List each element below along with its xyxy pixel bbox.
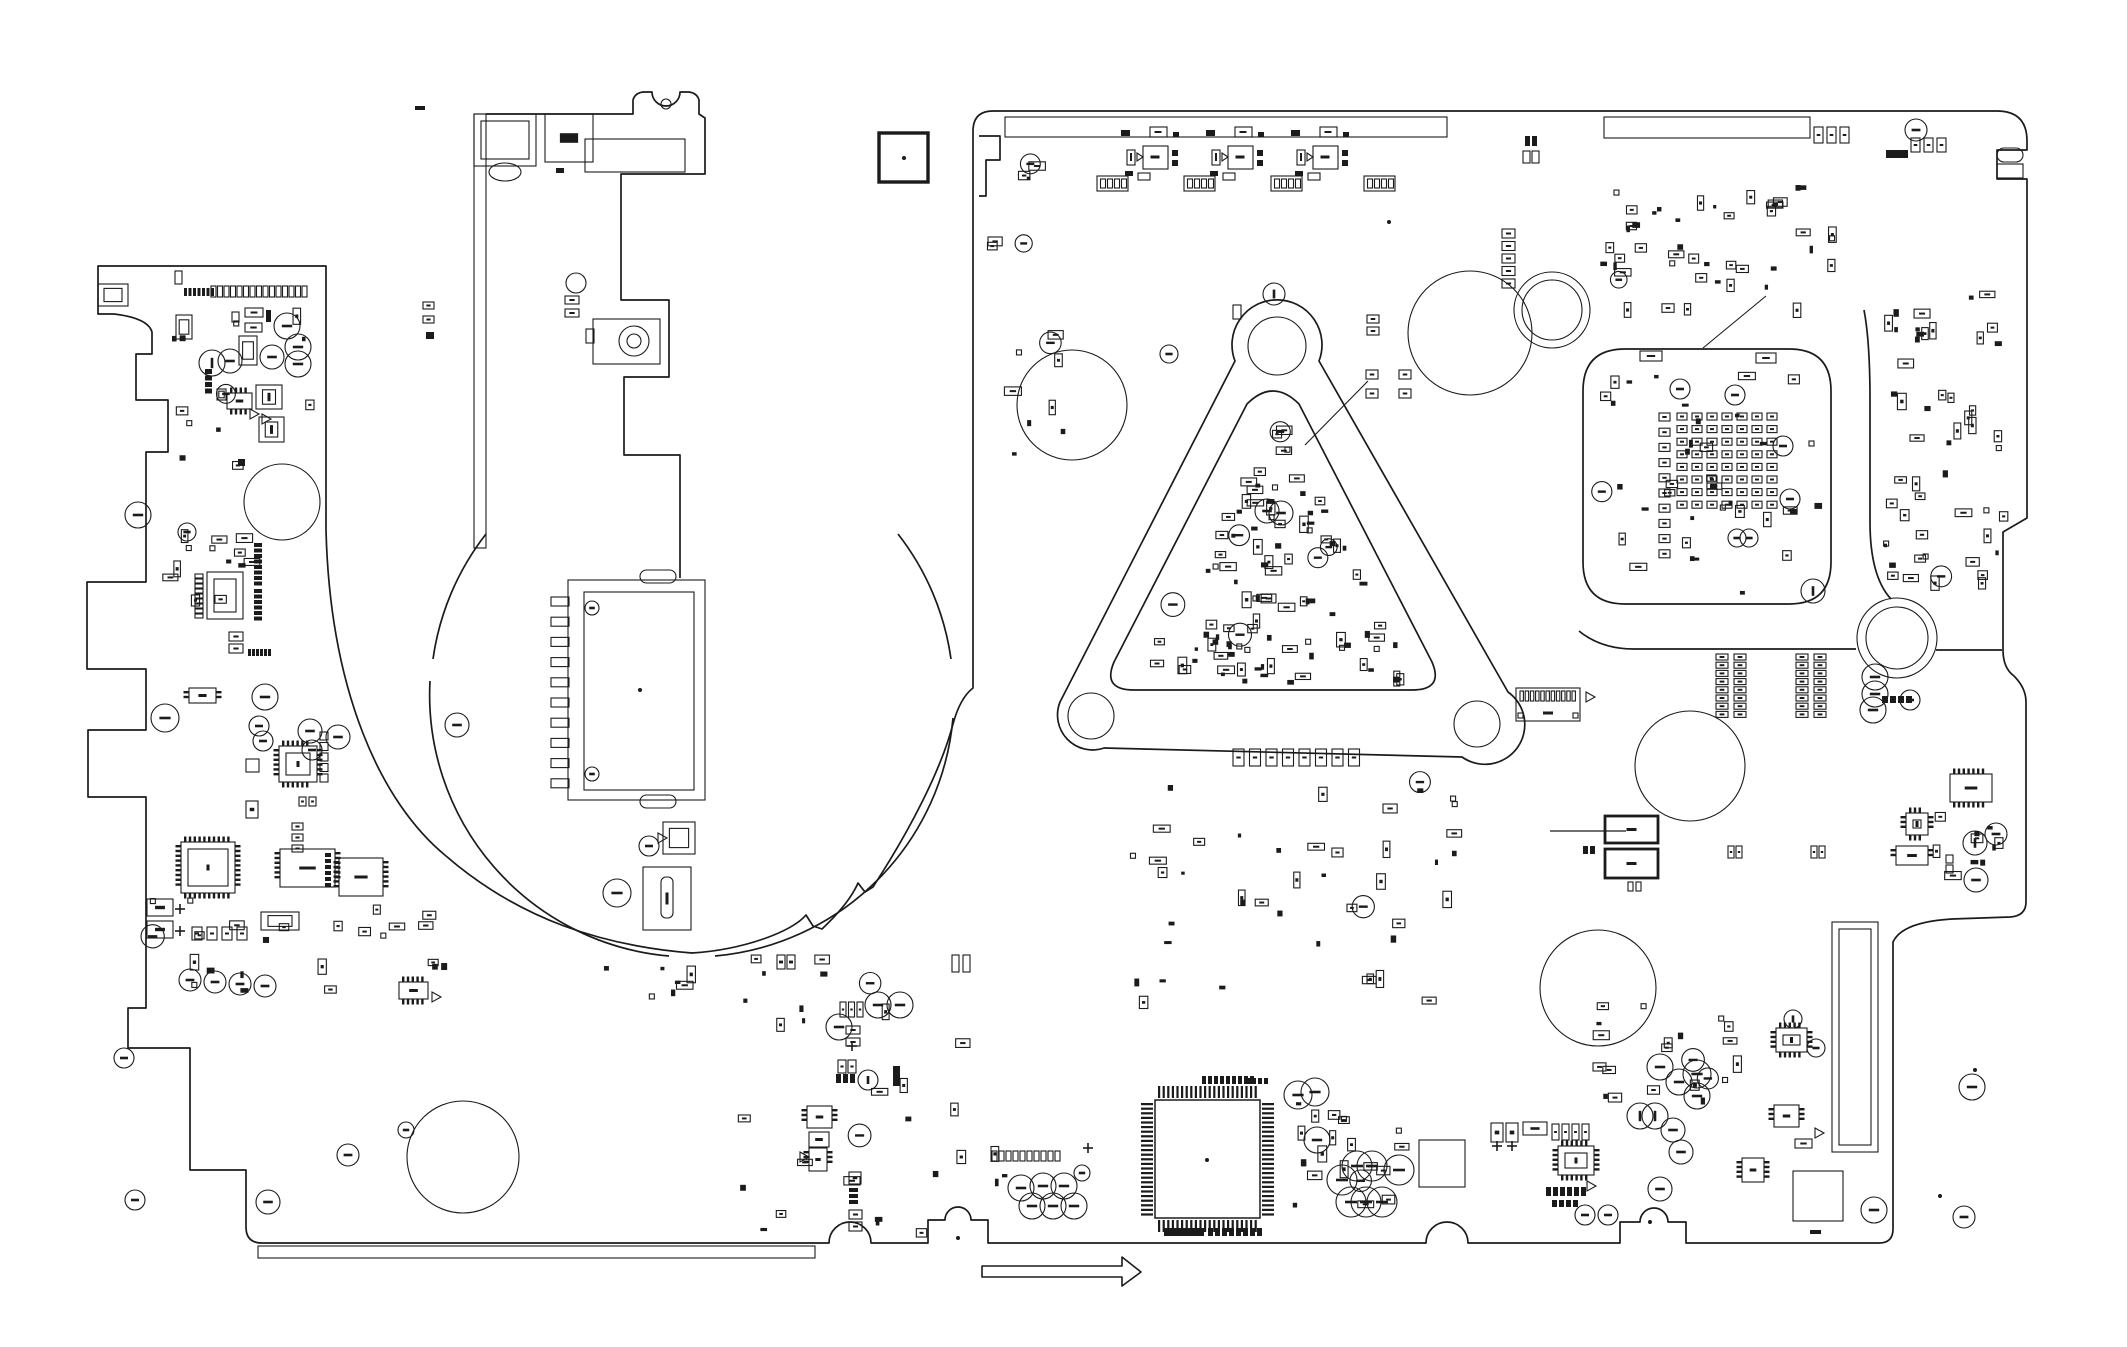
ic-pin xyxy=(176,879,182,881)
component xyxy=(1213,564,1218,569)
component-mark xyxy=(1975,837,1979,839)
direction-arrow-icon xyxy=(982,1257,1141,1286)
board-outline-path xyxy=(87,111,2027,1243)
component-pad xyxy=(1255,484,1260,488)
component-mark xyxy=(1914,437,1919,439)
pad xyxy=(237,286,242,297)
component-mark xyxy=(1399,1146,1404,1148)
component-mark xyxy=(1620,271,1626,273)
component-pad xyxy=(1567,1187,1572,1196)
component-pad xyxy=(260,649,263,656)
ic-pin xyxy=(208,837,210,843)
component-pad xyxy=(1704,262,1709,266)
component-mark xyxy=(1506,233,1511,235)
component-mark xyxy=(1654,1111,1657,1121)
pin1-triangle-mark xyxy=(1815,1128,1824,1138)
component-mark xyxy=(1630,209,1634,211)
component xyxy=(1720,505,1725,510)
component-mark xyxy=(1729,264,1733,266)
component-pad xyxy=(604,966,609,971)
component-mark xyxy=(1318,500,1322,502)
qfp-pin xyxy=(1262,1108,1274,1110)
component-mark xyxy=(1729,284,1732,287)
component-mark xyxy=(1680,491,1684,493)
qfp-pin xyxy=(1141,1108,1153,1110)
fan-ring-arc xyxy=(430,681,669,956)
component-mark xyxy=(1800,664,1805,666)
component-mark xyxy=(1918,558,1922,560)
component-mark xyxy=(1738,705,1743,707)
fan-ring-arc xyxy=(898,534,951,659)
qfp-pin xyxy=(1181,1086,1183,1098)
qfp-pin xyxy=(1209,1086,1211,1098)
component-pad xyxy=(1886,150,1908,158)
component-mark xyxy=(1363,1203,1369,1205)
component-mark xyxy=(1915,482,1918,485)
component xyxy=(1245,647,1250,652)
component-mark xyxy=(789,961,793,964)
component-pad xyxy=(740,1185,746,1191)
component-mark xyxy=(850,1066,853,1068)
component-pad xyxy=(760,1228,767,1231)
ic-pin xyxy=(1571,1175,1573,1181)
component-mark xyxy=(1210,643,1213,646)
ic-pin xyxy=(412,977,414,983)
pad xyxy=(195,589,203,593)
ic-pin xyxy=(1963,802,1965,808)
component-pad xyxy=(1790,509,1797,514)
qfp-pin xyxy=(1141,1158,1153,1160)
component-mark xyxy=(1336,1179,1348,1182)
component-mark xyxy=(1367,979,1372,981)
component-mark xyxy=(1225,566,1231,568)
ffc-tooth xyxy=(1541,691,1544,701)
ic-pin xyxy=(802,1109,808,1111)
component-pad xyxy=(1617,484,1622,490)
component-pad xyxy=(1894,327,1898,332)
component-pad xyxy=(1240,900,1244,906)
ic-pin xyxy=(421,977,423,983)
component-pad xyxy=(325,877,331,881)
ic-pin xyxy=(1891,854,1897,856)
ic-pin xyxy=(176,883,182,885)
component-pad xyxy=(1678,1033,1683,1040)
ic-pin xyxy=(1799,1113,1805,1115)
component xyxy=(1809,441,1814,446)
pad xyxy=(1308,173,1320,180)
qfp-pin xyxy=(1167,1086,1169,1098)
component-mark xyxy=(1710,477,1714,479)
ic-pin xyxy=(240,388,242,394)
component-pad xyxy=(995,1179,999,1187)
component-pad xyxy=(254,560,262,564)
component-mark xyxy=(992,240,997,242)
component-mark xyxy=(1818,681,1823,683)
component-pad xyxy=(205,382,212,387)
component-mark xyxy=(1395,677,1398,680)
component-mark xyxy=(1142,1001,1145,1004)
component-mark xyxy=(1812,586,1815,596)
component-mark xyxy=(1618,257,1622,259)
component-mark xyxy=(295,314,298,318)
ic-pin xyxy=(1771,1031,1777,1033)
component-mark xyxy=(1991,327,1995,329)
ic-pin xyxy=(383,875,389,877)
qfp-pin xyxy=(1262,1190,1274,1192)
component-mark xyxy=(1689,1059,1698,1061)
component-mark xyxy=(1971,424,1974,428)
qfp-pin xyxy=(1141,1181,1153,1183)
component-mark xyxy=(1446,898,1449,902)
component-mark xyxy=(1426,1000,1431,1002)
component-mark xyxy=(1903,514,1906,516)
component-pad xyxy=(1995,550,1998,555)
component xyxy=(186,546,191,551)
ic-pin xyxy=(194,837,196,843)
component-mark xyxy=(1226,516,1231,518)
component-mark xyxy=(1692,258,1696,260)
component-pad xyxy=(1258,1078,1262,1084)
ic-pin xyxy=(208,893,210,899)
mounting-hole xyxy=(244,464,320,540)
component-mark xyxy=(1215,153,1217,161)
qfp-pin xyxy=(1262,1195,1274,1197)
component-mark xyxy=(866,982,875,984)
component-pad xyxy=(1729,501,1732,506)
pad xyxy=(1108,179,1113,188)
component-pad xyxy=(240,988,248,993)
ic-pin xyxy=(1793,1052,1795,1058)
component-mark xyxy=(1506,270,1511,272)
component-mark xyxy=(176,567,179,570)
qfp-pin xyxy=(1227,1086,1229,1098)
qfp-pin xyxy=(1199,1086,1201,1098)
component-mark xyxy=(1246,481,1252,483)
component-mark xyxy=(210,933,214,935)
component-pad xyxy=(1603,1094,1608,1099)
mounting-hole xyxy=(1635,711,1745,821)
component xyxy=(1723,1077,1728,1082)
pad xyxy=(250,286,255,297)
component-mark xyxy=(1762,357,1770,359)
component-outline xyxy=(175,271,182,284)
component-mark xyxy=(1378,625,1382,627)
component-pad xyxy=(1343,132,1349,137)
component-mark xyxy=(183,535,186,538)
component-pad xyxy=(426,332,434,339)
component-mark xyxy=(195,933,199,935)
qfp-pin xyxy=(1262,1135,1274,1137)
component-mark xyxy=(834,1026,844,1029)
component-mark xyxy=(1385,848,1388,852)
cluster-above-gpu xyxy=(1600,185,1836,317)
component-mark xyxy=(225,933,229,935)
component-mark xyxy=(1710,491,1714,493)
component-mark xyxy=(1235,634,1244,636)
component-pad xyxy=(1168,785,1173,791)
component-mark xyxy=(1956,429,1959,433)
component-mark xyxy=(1281,450,1287,452)
ic-pin xyxy=(306,782,308,788)
ffc-key xyxy=(1518,713,1523,718)
component-mark xyxy=(1818,689,1823,691)
component-mark xyxy=(1314,556,1322,558)
component-mark xyxy=(263,1201,273,1204)
ic-pin xyxy=(334,880,340,882)
component-pad xyxy=(1943,470,1948,477)
component-mark xyxy=(426,319,430,321)
component-mark xyxy=(1598,1034,1604,1036)
component-mark xyxy=(645,845,653,848)
component-pad xyxy=(1632,222,1640,228)
component-mark xyxy=(1710,416,1714,418)
component-mark xyxy=(1725,466,1729,468)
qfp-pin xyxy=(1190,1086,1192,1098)
pad xyxy=(999,1151,1004,1161)
component-pad xyxy=(325,865,331,869)
component-mark xyxy=(1302,523,1305,527)
component-mark xyxy=(344,1154,353,1157)
component-mark xyxy=(1220,534,1225,536)
component-mark xyxy=(409,989,418,992)
pad xyxy=(1034,1151,1039,1161)
component-pad xyxy=(1251,527,1257,531)
component-mark xyxy=(1725,416,1729,418)
component-mark xyxy=(1940,144,1944,146)
component-mark xyxy=(1830,264,1833,267)
ffc-tooth xyxy=(1567,691,1570,701)
component-mark xyxy=(337,925,340,927)
component-mark xyxy=(1321,1152,1324,1156)
pad xyxy=(231,286,236,297)
mounting-hole xyxy=(1866,607,1928,669)
component-mark xyxy=(1750,1169,1757,1172)
qfp-pin xyxy=(1141,1112,1153,1114)
ic-pin xyxy=(416,977,418,983)
component-mark xyxy=(815,1138,823,1141)
qfp-pin xyxy=(1158,1220,1160,1232)
component xyxy=(1996,446,2001,451)
component-mark xyxy=(855,1134,864,1136)
mounting-hole xyxy=(1017,350,1127,460)
component-pad xyxy=(1121,130,1130,136)
component-mark xyxy=(1020,242,1027,244)
gpu-relief-line xyxy=(1864,310,1891,599)
qfp-pin xyxy=(1241,1220,1243,1232)
qfp-pin xyxy=(1163,1086,1165,1098)
ic-pin xyxy=(184,691,190,693)
ic-pin xyxy=(176,850,182,852)
component-mark xyxy=(1868,709,1878,712)
ic-pin xyxy=(1982,769,1984,775)
qfp-pin xyxy=(1255,1086,1257,1098)
ffc-tooth xyxy=(1546,691,1549,701)
qfp-pin xyxy=(1141,1103,1153,1105)
component-pad xyxy=(205,389,212,394)
component-pad xyxy=(1330,541,1336,546)
component-mark xyxy=(1270,570,1276,572)
ic-inner xyxy=(243,342,254,359)
component-mark xyxy=(1800,672,1805,674)
pcb-assembly-drawing xyxy=(0,0,2127,1347)
component xyxy=(1641,1004,1646,1009)
component-mark xyxy=(1919,313,1925,315)
ic-pin xyxy=(292,782,294,788)
component-mark xyxy=(1161,871,1164,873)
component-pad xyxy=(198,288,201,296)
component-pad xyxy=(1627,380,1633,383)
component-mark xyxy=(1252,502,1258,504)
component-mark xyxy=(1960,1216,1969,1219)
component-pad xyxy=(556,168,564,173)
component-mark xyxy=(1712,485,1718,487)
qfp-pin xyxy=(1250,1086,1252,1098)
qfp-pin xyxy=(1176,1086,1178,1098)
component-mark xyxy=(1695,479,1699,481)
component-pad xyxy=(1173,132,1179,137)
component-mark xyxy=(207,865,210,871)
cluster-corner-bits xyxy=(1933,812,2003,879)
fan-shroud-outline xyxy=(486,92,705,578)
bracket-seam-line xyxy=(1703,296,1766,348)
ic-pin xyxy=(198,837,200,843)
ic-pin xyxy=(240,409,242,415)
ic-pin xyxy=(235,850,241,852)
component-mark xyxy=(1223,669,1229,671)
component-mark xyxy=(1725,453,1729,455)
ic-pin xyxy=(1914,835,1916,841)
ic-pin xyxy=(1784,1052,1786,1058)
component-pad xyxy=(1924,406,1930,411)
cluster-bottom-mid xyxy=(738,955,1007,1237)
ic-pin xyxy=(1769,1113,1775,1115)
pad xyxy=(302,286,307,297)
component-pad xyxy=(1452,851,1457,856)
component-mark xyxy=(902,1084,905,1087)
component-mark xyxy=(1165,353,1172,356)
pad xyxy=(1389,179,1394,188)
component-mark xyxy=(267,356,277,359)
pad xyxy=(1282,179,1287,188)
ic-pin xyxy=(218,837,220,843)
component-pad xyxy=(1330,612,1336,616)
ic-pin xyxy=(1914,808,1916,814)
component-mark xyxy=(1312,1174,1317,1176)
component-mark xyxy=(1321,793,1324,796)
qfp-pin xyxy=(1262,1177,1274,1179)
component xyxy=(1306,639,1311,644)
component-pad xyxy=(1204,632,1210,638)
component-pad xyxy=(1277,911,1282,917)
ic-pin xyxy=(402,977,404,983)
component-pad xyxy=(1740,591,1745,595)
component-mark xyxy=(569,299,574,301)
component-mark xyxy=(1283,606,1289,608)
component-mark xyxy=(1766,518,1769,521)
component-mark xyxy=(1662,431,1666,433)
component-mark xyxy=(305,730,315,733)
component-pad xyxy=(1995,341,2002,346)
component-mark xyxy=(1736,1062,1739,1066)
component-mark xyxy=(1335,757,1339,759)
component-pad xyxy=(1257,150,1263,156)
component-mark xyxy=(1738,689,1743,691)
component-mark xyxy=(1295,878,1298,881)
component-pad xyxy=(1611,401,1616,406)
pad xyxy=(1048,1151,1053,1161)
component-mark xyxy=(802,1161,808,1163)
component-pad xyxy=(1195,647,1198,650)
component-mark xyxy=(589,773,595,776)
component-mark xyxy=(1770,479,1774,481)
component-mark xyxy=(1218,554,1222,556)
component-mark xyxy=(1273,290,1276,299)
component-mark xyxy=(1378,977,1381,981)
ic-pin xyxy=(1769,1118,1775,1120)
component-mark xyxy=(270,425,273,434)
component-pad xyxy=(1685,449,1690,455)
ic-pin xyxy=(235,859,241,861)
component-pad xyxy=(1246,1078,1250,1084)
component-mark xyxy=(1740,416,1744,418)
ffc-tooth xyxy=(1536,691,1539,701)
component-mark xyxy=(251,312,258,314)
pad xyxy=(1223,173,1235,180)
component-mark xyxy=(1662,507,1666,509)
ic-pin xyxy=(1561,1141,1563,1147)
component-mark xyxy=(186,979,195,982)
component-outline xyxy=(1636,882,1641,891)
pad xyxy=(1375,179,1380,188)
component-mark xyxy=(1604,1214,1612,1217)
qfp-pin xyxy=(1241,1086,1243,1098)
ic-pin xyxy=(218,893,220,899)
component-pad xyxy=(1316,941,1320,946)
ic-pin xyxy=(244,388,246,394)
component-mark xyxy=(816,1116,824,1119)
component-pad xyxy=(1889,563,1896,568)
pad xyxy=(1209,179,1214,188)
ic-pin xyxy=(198,893,200,899)
component-pad xyxy=(743,999,747,1003)
ffc-tooth xyxy=(1551,691,1554,701)
component-mark xyxy=(133,514,143,517)
component-mark xyxy=(1949,397,1952,399)
cpu-bracket-group xyxy=(1058,296,1766,764)
ic-pin xyxy=(189,837,191,843)
component-mark xyxy=(1818,664,1823,666)
ic-pin xyxy=(416,999,418,1005)
component-pad xyxy=(1242,679,1247,684)
qfp-pin xyxy=(1262,1154,1274,1156)
qfp-pin xyxy=(1262,1200,1274,1202)
component-mark xyxy=(1996,435,1999,437)
component-mark xyxy=(1720,705,1725,707)
component xyxy=(1614,190,1619,195)
component-mark xyxy=(1370,393,1375,395)
component-mark xyxy=(1695,453,1699,455)
component-outline xyxy=(246,759,259,772)
component-mark xyxy=(297,761,300,767)
component-mark xyxy=(1813,851,1815,853)
component-mark xyxy=(1370,374,1375,376)
component xyxy=(1130,853,1135,858)
component-mark xyxy=(1601,1005,1605,1007)
component-pad xyxy=(1693,558,1699,561)
component-pad xyxy=(1208,1076,1212,1084)
component-mark xyxy=(850,1009,852,1011)
ic-pin xyxy=(235,879,241,881)
